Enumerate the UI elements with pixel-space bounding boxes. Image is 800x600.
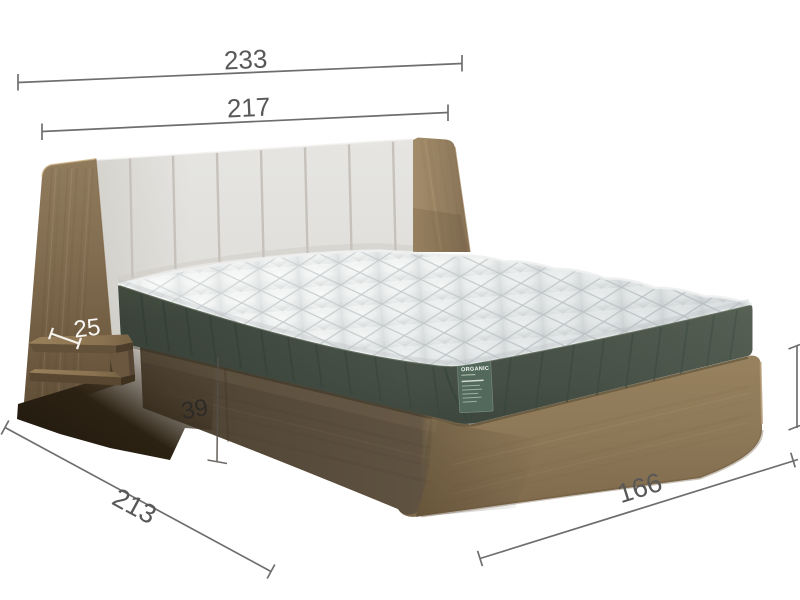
svg-text:233: 233 bbox=[223, 44, 268, 76]
svg-text:217: 217 bbox=[226, 92, 271, 124]
svg-text:25: 25 bbox=[72, 314, 102, 344]
svg-text:39: 39 bbox=[179, 394, 210, 425]
